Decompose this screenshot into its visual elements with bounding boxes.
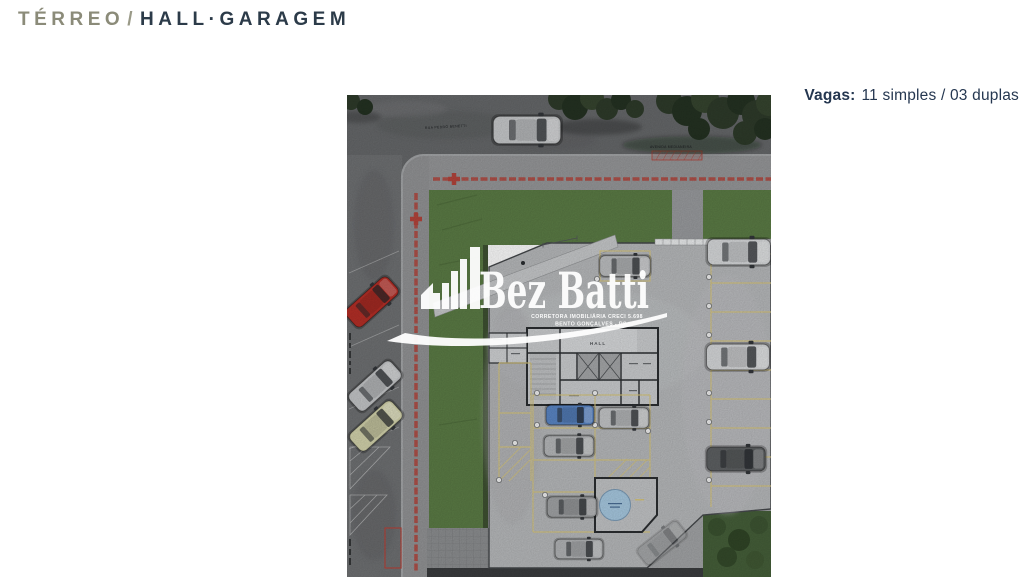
watermark-tagline-1: CORRETORA IMOBILIÁRIA CRECI 5.698 xyxy=(531,313,643,320)
page-title: TÉRREO/HALL·GARAGEM xyxy=(18,9,350,31)
parking-summary-label: Vagas: xyxy=(804,87,855,104)
floor-plan-svg: RUA PEDRO BENETTI AVENIDA MEDIANEIRA HAL… xyxy=(347,95,771,577)
watermark-brand: Bez Batti xyxy=(479,261,649,320)
title-separator: / xyxy=(127,9,137,30)
hall-label: HALL xyxy=(590,341,606,346)
parking-summary: Vagas:11 simples / 03 duplas xyxy=(804,87,1019,105)
title-area-label: HALL·GARAGEM xyxy=(140,9,350,30)
watermark-tagline-2: BENTO GONÇALVES - RS xyxy=(555,322,627,328)
page: TÉRREO/HALL·GARAGEM Vagas:11 simples / 0… xyxy=(0,0,1024,582)
title-floor-label: TÉRREO xyxy=(18,9,124,30)
street-right-label: AVENIDA MEDIANEIRA xyxy=(650,145,692,149)
parking-summary-value: 11 simples / 03 duplas xyxy=(862,87,1019,104)
floor-plan-image: RUA PEDRO BENETTI AVENIDA MEDIANEIRA HAL… xyxy=(347,95,771,577)
